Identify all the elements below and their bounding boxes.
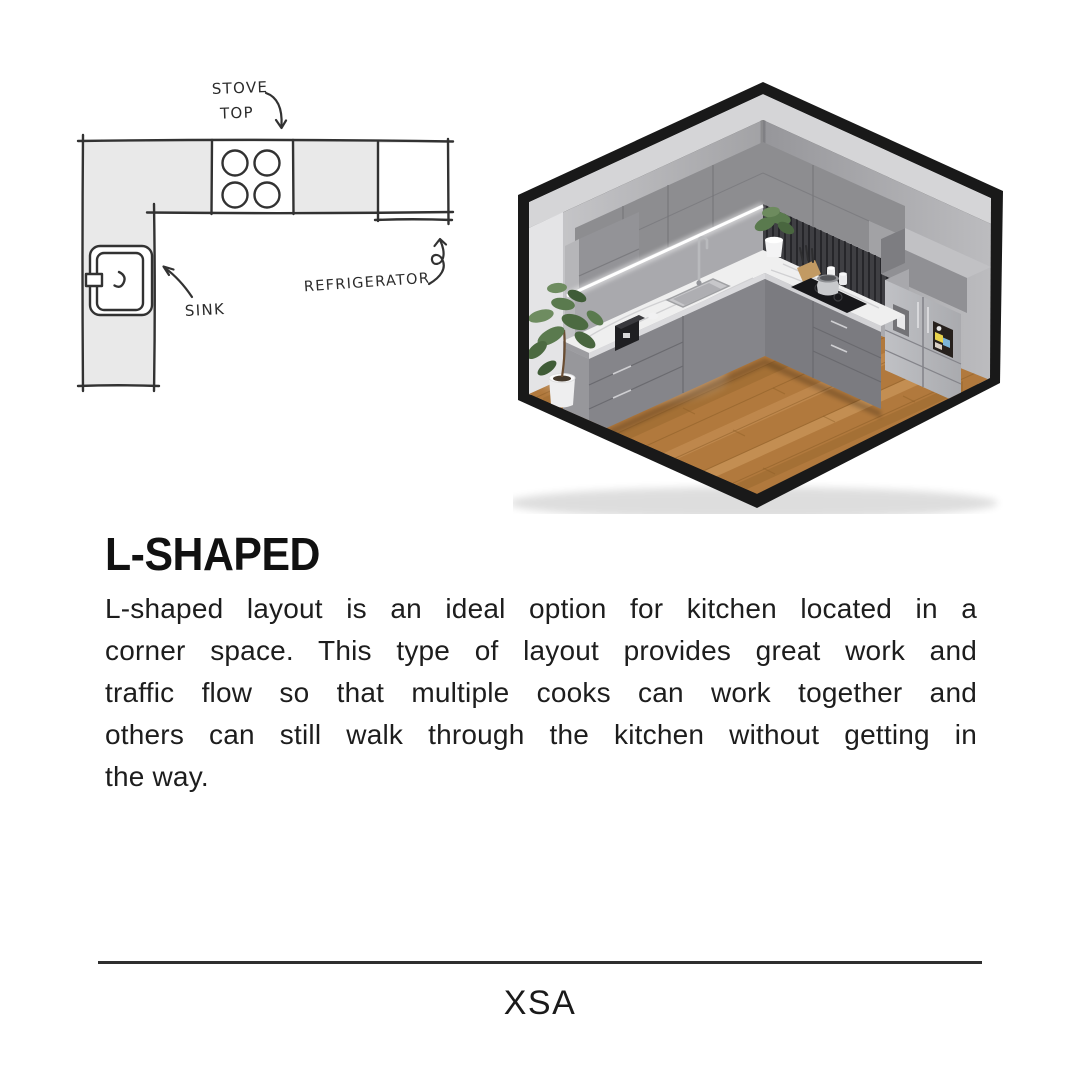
paragraph-line: L-shaped layout is an ideal option for k… — [105, 588, 977, 630]
stove-top-label-line2: TOP — [219, 103, 255, 122]
brand-logo-text: XSA — [0, 984, 1080, 1023]
sink-tap-tab — [86, 274, 102, 286]
refrigerator-area — [378, 143, 448, 220]
counter-dish — [648, 313, 658, 320]
footer-divider — [98, 961, 982, 964]
refrigerator-arrow — [429, 240, 444, 284]
sink-arrow — [165, 268, 192, 297]
page-title: L-SHAPED — [105, 527, 320, 581]
stove-top-label: STOVE — [211, 78, 268, 98]
refrigerator-label: REFRIGERATOR — [303, 271, 430, 296]
infographic-page: STOVE TOP REFRIGERATOR SINK — [0, 0, 1080, 1080]
paragraph-line: traffic flow so that multiple cooks can … — [105, 672, 977, 714]
cooking-pot — [817, 275, 839, 296]
paragraph-line: corner space. This type of layout provid… — [105, 630, 977, 672]
floor-plan-sketch: STOVE TOP REFRIGERATOR SINK — [70, 60, 472, 412]
kitchen-render — [513, 78, 1007, 514]
paragraph-line: the way. — [105, 756, 977, 798]
paragraph-line: others can still walk through the kitche… — [105, 714, 977, 756]
sink-label: SINK — [184, 300, 225, 320]
description-paragraph: L-shaped layout is an ideal option for k… — [105, 588, 977, 798]
stove-arrow — [266, 93, 282, 126]
